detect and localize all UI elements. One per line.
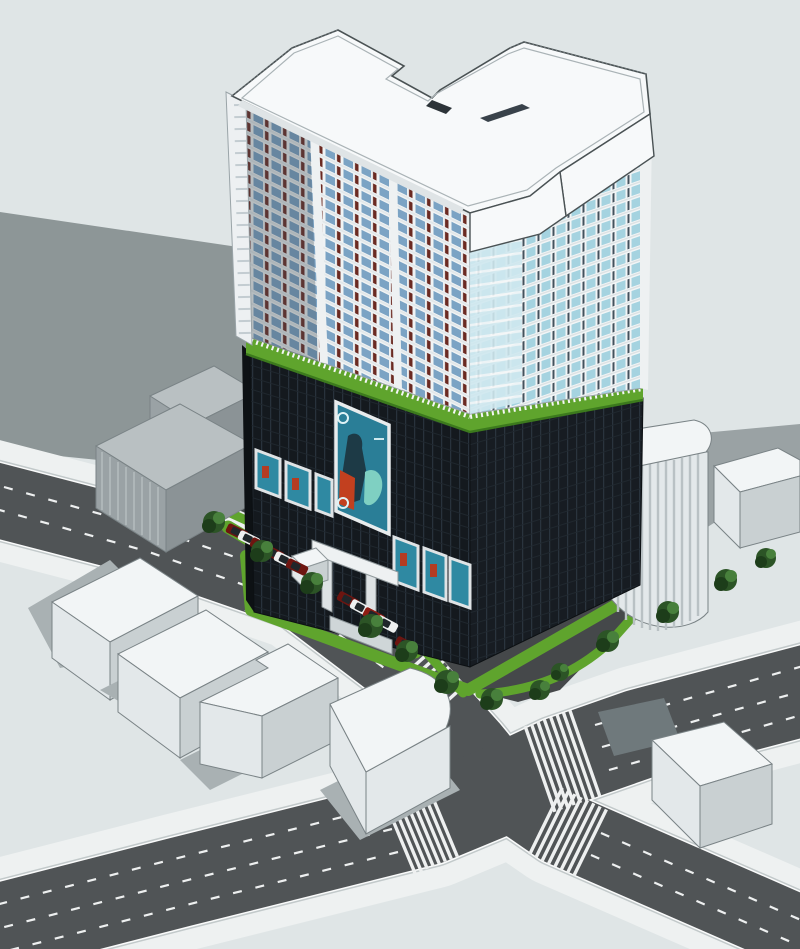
billboard-caption-mark — [374, 438, 384, 440]
poster-right-3 — [450, 558, 470, 608]
poster-accent-4 — [430, 564, 437, 577]
tree — [551, 663, 569, 681]
poster-accent-3 — [400, 553, 407, 566]
poster-accent-2 — [292, 478, 299, 490]
podium-billboard — [336, 402, 389, 534]
main-tower — [226, 30, 654, 667]
l-building-front — [200, 702, 262, 778]
aerial-architectural-render — [0, 0, 800, 949]
poster-accent-1 — [262, 466, 269, 478]
render-canvas — [0, 0, 800, 949]
poster-left-3 — [316, 474, 332, 516]
right-edge-box — [714, 448, 800, 548]
